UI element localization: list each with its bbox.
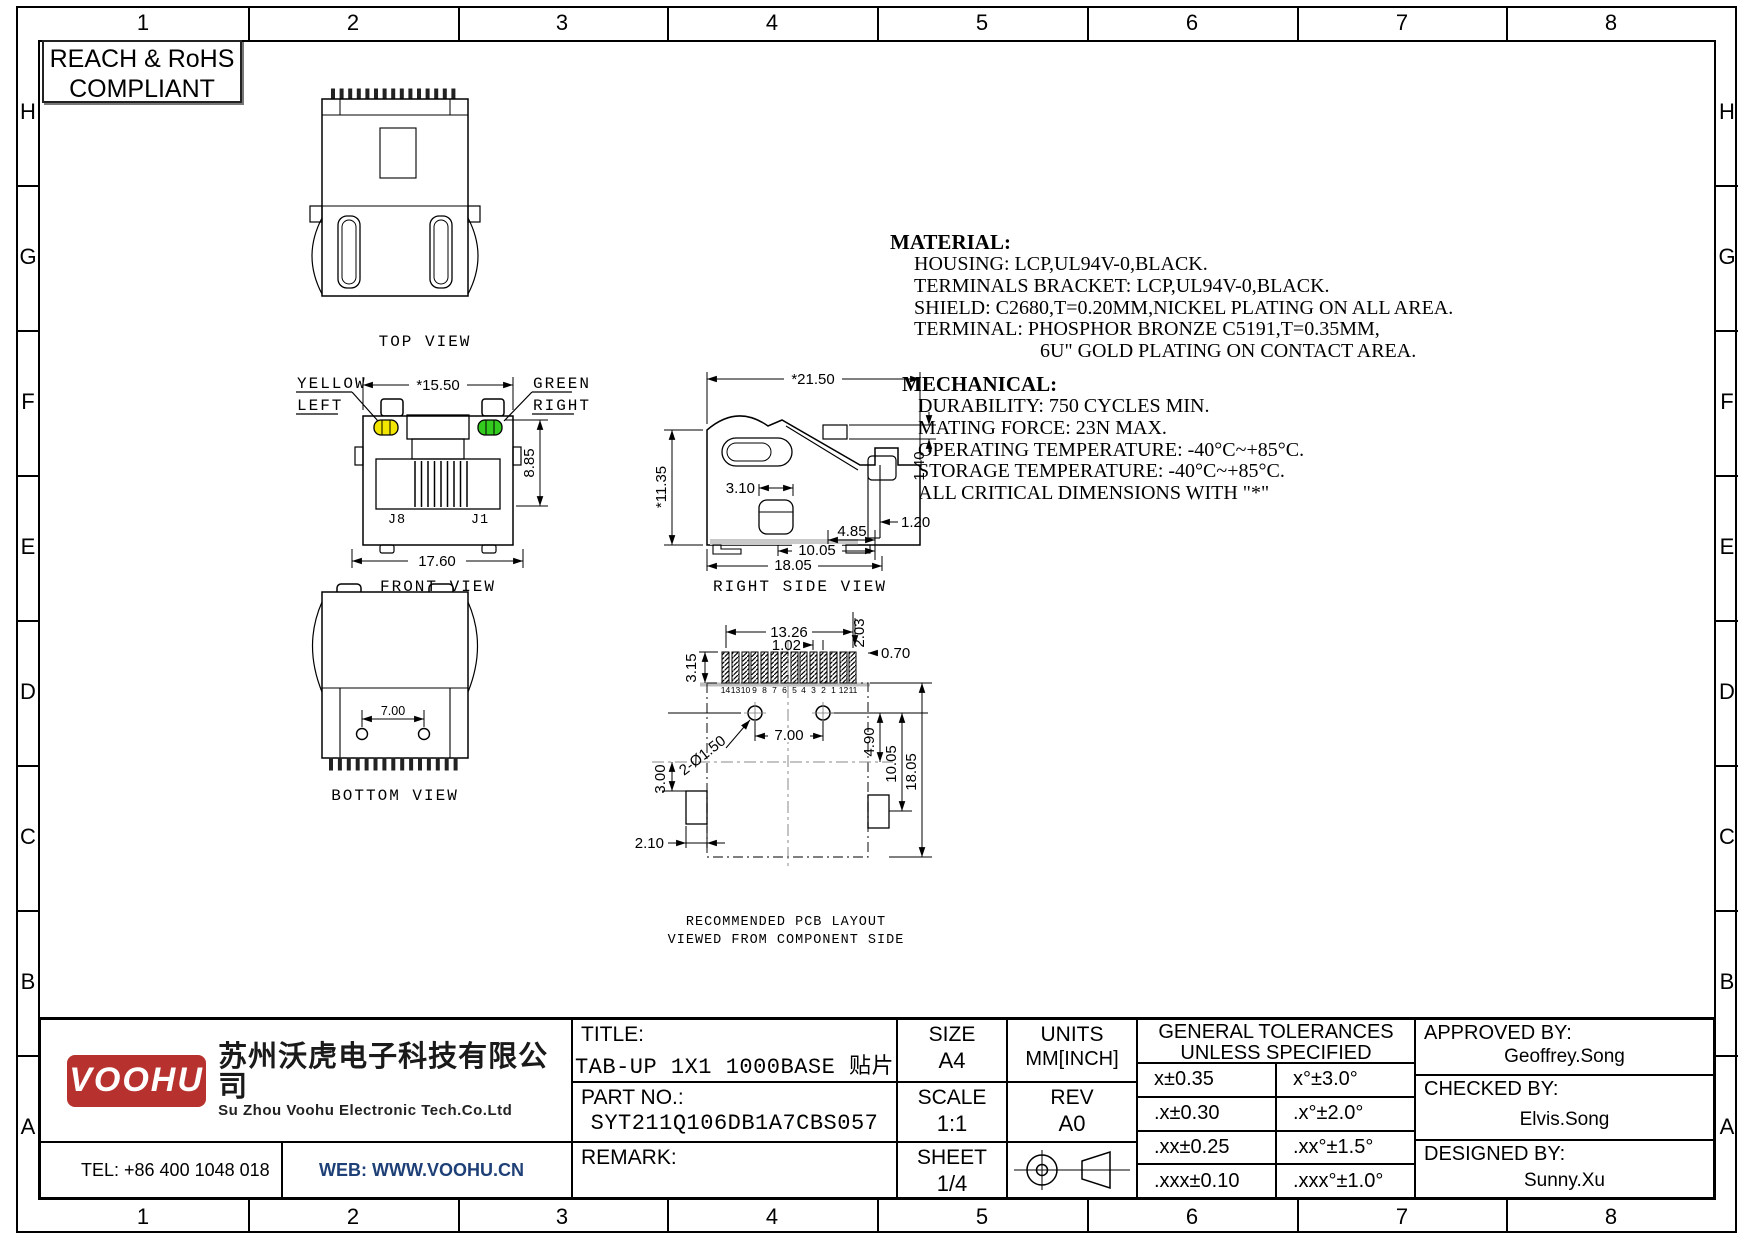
jack-pin-j1-label: J1 bbox=[471, 513, 489, 528]
bottom-view: 7.00 BOTTOM VIEW bbox=[313, 584, 478, 805]
pin-number: 11 bbox=[849, 685, 858, 695]
dim-side-a: 4.85 bbox=[837, 523, 866, 540]
company-cell: VOOHU 苏州沃虎电子科技有限公司 Su Zhou Voohu Electro… bbox=[40, 1019, 572, 1142]
units-value: MM[INCH] bbox=[1008, 1048, 1136, 1071]
pin-number: 7 bbox=[772, 685, 777, 695]
units-label: UNITS bbox=[1008, 1020, 1136, 1047]
front-view: J8 J1 YELLOW LEFT GREEN RIGHT *15.50 8.8… bbox=[296, 375, 591, 596]
tolerance-value: x°±3.0° bbox=[1276, 1063, 1415, 1097]
checked-label: CHECKED BY: bbox=[1416, 1076, 1713, 1101]
pcb-layout: 14 13 10 9 8 7 6 5 4 3 2 1 12 11 bbox=[635, 612, 932, 948]
signoff-cell: APPROVED BY: Geoffrey.Song CHECKED BY: E… bbox=[1415, 1019, 1714, 1198]
rev-value: A0 bbox=[1008, 1111, 1136, 1137]
dim-side-height: *11.35 bbox=[653, 466, 670, 508]
dim-pcb-f: 10.05 bbox=[883, 745, 900, 783]
title-value: TAB-UP 1X1 1000BASE 贴片 bbox=[573, 1048, 896, 1080]
dim-side-length: *21.50 bbox=[791, 371, 834, 388]
designed-label: DESIGNED BY: bbox=[1416, 1141, 1713, 1166]
pin-number: 5 bbox=[792, 685, 797, 695]
dim-front-height: 8.85 bbox=[521, 448, 538, 477]
dim-pcb-holes: 7.00 bbox=[774, 727, 803, 744]
approved-cell: APPROVED BY: Geoffrey.Song bbox=[1415, 1019, 1714, 1075]
company-name-en: Su Zhou Voohu Electronic Tech.Co.Ltd bbox=[218, 1102, 571, 1119]
pin-number: 14 bbox=[721, 685, 731, 695]
led-right-pos-label: RIGHT bbox=[533, 397, 591, 415]
designed-cell: DESIGNED BY: Sunny.Xu bbox=[1415, 1140, 1714, 1198]
pcb-layout-label-2: VIEWED FROM COMPONENT SIDE bbox=[668, 933, 905, 948]
remark-cell: REMARK: bbox=[572, 1142, 897, 1198]
sheet-value: 1/4 bbox=[898, 1171, 1006, 1197]
pin-number: 1 bbox=[831, 685, 836, 695]
tolerances-cell: GENERAL TOLERANCES UNLESS SPECIFIED x±0.… bbox=[1137, 1019, 1415, 1198]
dim-side-c: 18.05 bbox=[774, 557, 812, 574]
pin-number: 3 bbox=[811, 685, 816, 695]
pin-number: 2 bbox=[821, 685, 826, 695]
dim-pcb-pitch: 1.02 bbox=[772, 637, 801, 654]
size-value: A4 bbox=[898, 1048, 1006, 1074]
size-label: SIZE bbox=[898, 1020, 1006, 1047]
dim-pcb-pad3: 0.70 bbox=[881, 645, 910, 662]
rev-cell: REV A0 bbox=[1007, 1082, 1137, 1142]
pin-number: 6 bbox=[782, 685, 787, 695]
dim-pcb-g: 18.05 bbox=[903, 753, 920, 791]
projection-symbol-cell bbox=[1007, 1142, 1137, 1198]
dim-side-post: 3.10 bbox=[726, 480, 755, 497]
company-web: WEB: WWW.VOOHU.CN bbox=[282, 1142, 572, 1198]
dim-bottom-posts: 7.00 bbox=[381, 704, 405, 718]
title-label: TITLE: bbox=[573, 1020, 896, 1047]
sheet-cell: SHEET 1/4 bbox=[897, 1142, 1007, 1198]
scale-cell: SCALE 1:1 bbox=[897, 1082, 1007, 1142]
jack-pin-j8-label: J8 bbox=[388, 513, 406, 528]
remark-label: REMARK: bbox=[573, 1143, 896, 1170]
tolerance-value: .x±0.30 bbox=[1137, 1097, 1276, 1131]
pcb-layout-label-1: RECOMMENDED PCB LAYOUT bbox=[686, 915, 886, 930]
pin-number: 10 bbox=[741, 685, 751, 695]
dim-pcb-tab-width: 2.10 bbox=[635, 835, 664, 852]
part-number-cell: PART NO.: SYT211Q106DB1A7CBS057 bbox=[572, 1082, 897, 1142]
sheet-label: SHEET bbox=[898, 1143, 1006, 1170]
approved-value: Geoffrey.Song bbox=[1416, 1046, 1713, 1068]
title-block: VOOHU 苏州沃虎电子科技有限公司 Su Zhou Voohu Electro… bbox=[38, 1017, 1716, 1200]
dim-pcb-hole-diameter: 2-Ø1.50 bbox=[676, 732, 729, 779]
title-cell: TITLE: TAB-UP 1X1 1000BASE 贴片 bbox=[572, 1019, 897, 1082]
tolerance-value: x±0.35 bbox=[1137, 1063, 1276, 1097]
led-yellow bbox=[374, 420, 398, 435]
approved-label: APPROVED BY: bbox=[1416, 1020, 1713, 1045]
tolerance-value: .x°±2.0° bbox=[1276, 1097, 1415, 1131]
bottom-view-label: BOTTOM VIEW bbox=[331, 787, 459, 805]
led-right-color-label: GREEN bbox=[533, 375, 591, 393]
designed-value: Sunny.Xu bbox=[1416, 1170, 1713, 1192]
pcb-pads bbox=[722, 652, 856, 683]
pin-number: 8 bbox=[762, 685, 767, 695]
dim-side-foot: 1.20 bbox=[901, 514, 930, 531]
part-number-value: SYT211Q106DB1A7CBS057 bbox=[573, 1111, 896, 1136]
dim-front-width: *15.50 bbox=[416, 377, 459, 394]
tolerances-header-line1: GENERAL TOLERANCES bbox=[1138, 1022, 1414, 1043]
dim-pcb-e: 4.90 bbox=[861, 727, 878, 756]
led-left-pos-label: LEFT bbox=[297, 397, 343, 415]
tolerances-header-line2: UNLESS SPECIFIED bbox=[1138, 1043, 1414, 1064]
pin-number: 4 bbox=[801, 685, 806, 695]
dim-side-tab: 1.40 bbox=[911, 451, 928, 480]
units-cell: UNITS MM[INCH] bbox=[1007, 1019, 1137, 1082]
tolerances-header: GENERAL TOLERANCES UNLESS SPECIFIED bbox=[1137, 1019, 1415, 1063]
rev-label: REV bbox=[1008, 1083, 1136, 1110]
tolerance-value: .xx±0.25 bbox=[1137, 1131, 1276, 1165]
part-number-label: PART NO.: bbox=[573, 1083, 896, 1110]
pin-number: 12 bbox=[839, 685, 849, 695]
pin-number: 13 bbox=[731, 685, 741, 695]
size-cell: SIZE A4 bbox=[897, 1019, 1007, 1082]
dim-front-outer: 17.60 bbox=[418, 553, 456, 570]
company-logo: VOOHU bbox=[67, 1055, 206, 1107]
checked-value: Elvis.Song bbox=[1416, 1109, 1713, 1131]
dim-pcb-pad-height: 3.15 bbox=[683, 653, 700, 682]
led-green bbox=[478, 420, 502, 435]
scale-label: SCALE bbox=[898, 1083, 1006, 1110]
side-view-label: RIGHT SIDE VIEW bbox=[713, 578, 887, 596]
led-left-color-label: YELLOW bbox=[297, 375, 367, 393]
tolerance-value: .xxx°±1.0° bbox=[1276, 1164, 1415, 1198]
side-view: *21.50 *11.35 3.10 1.40 1.20 4.85 10.05 … bbox=[653, 371, 936, 596]
company-name-cn: 苏州沃虎电子科技有限公司 bbox=[218, 1042, 571, 1102]
dim-pcb-tab-height: 3.00 bbox=[652, 764, 669, 793]
scale-value: 1:1 bbox=[898, 1111, 1006, 1137]
top-view-label: TOP VIEW bbox=[379, 333, 472, 351]
checked-cell: CHECKED BY: Elvis.Song bbox=[1415, 1075, 1714, 1140]
pin-number: 9 bbox=[752, 685, 757, 695]
company-tel: TEL: +86 400 1048 018 bbox=[40, 1142, 282, 1198]
dim-pcb-pad2: 2.03 bbox=[851, 618, 868, 647]
tolerance-value: .xx°±1.5° bbox=[1276, 1131, 1415, 1165]
tolerance-value: .xxx±0.10 bbox=[1137, 1164, 1276, 1198]
top-view: TOP VIEW bbox=[310, 94, 480, 351]
third-angle-projection-icon bbox=[1012, 1144, 1132, 1196]
